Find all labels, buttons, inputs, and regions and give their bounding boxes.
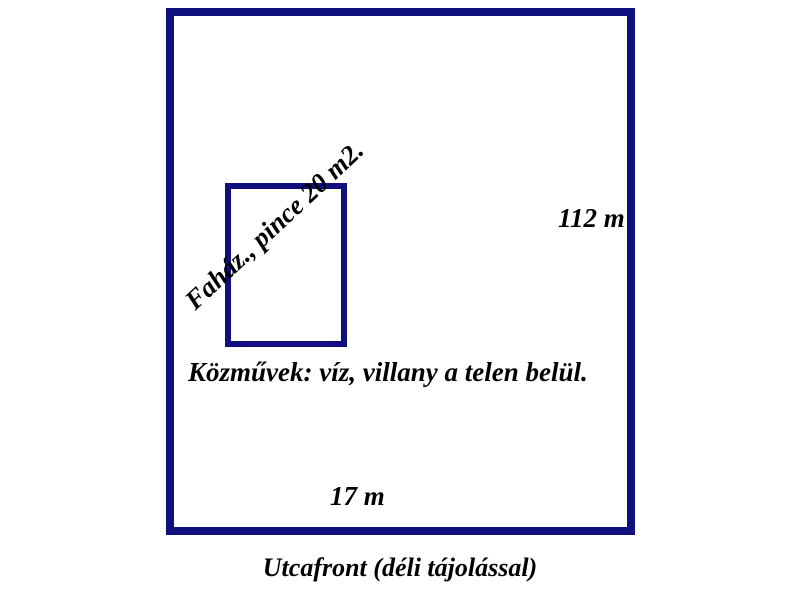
plot-diagram: Faház., pince 20 m2. 112 m Közművek: víz… <box>0 0 800 600</box>
side-length-label: 112 m <box>558 203 625 234</box>
utilities-note: Közművek: víz, villany a telen belül. <box>188 357 588 388</box>
street-front-caption: Utcafront (déli tájolással) <box>263 553 537 583</box>
front-length-label: 17 m <box>330 481 385 512</box>
